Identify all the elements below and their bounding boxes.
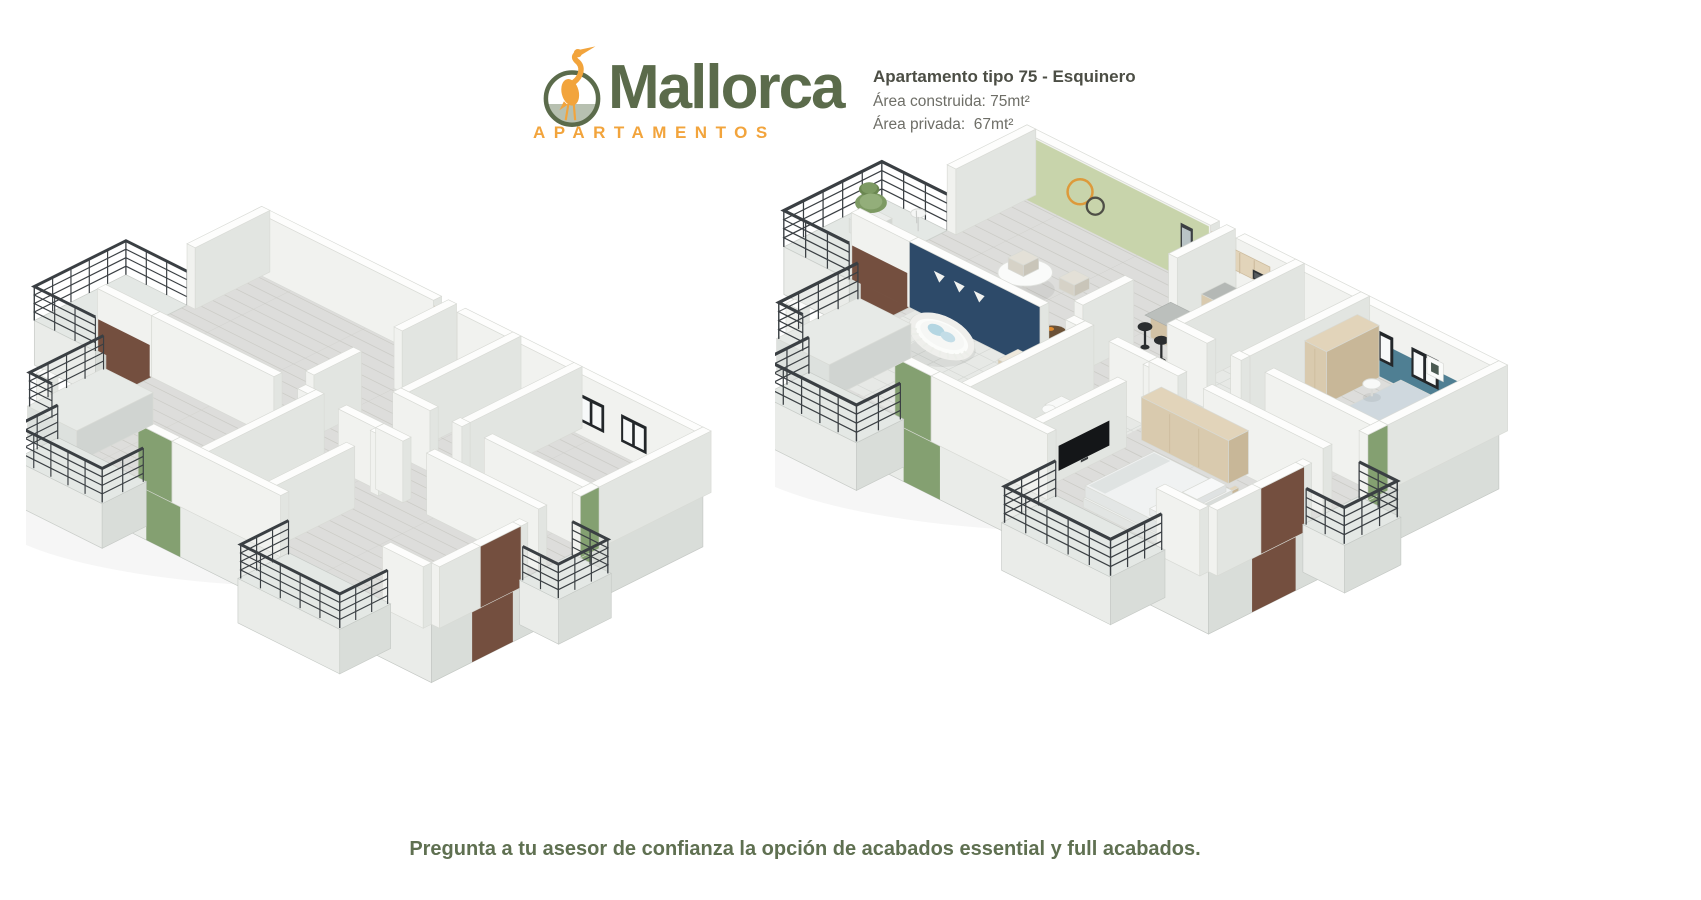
brand-tagline: APARTAMENTOS xyxy=(533,123,776,143)
unit-title: Apartamento tipo 75 - Esquinero xyxy=(873,68,1136,85)
floor-plan-unfurnished xyxy=(26,200,718,690)
footer-note: Pregunta a tu asesor de confianza la opc… xyxy=(0,838,1610,861)
brand-name: Mallorca xyxy=(608,57,844,119)
heron-in-circle-icon xyxy=(536,40,608,132)
floor-plan-furnished xyxy=(775,118,1515,642)
built-area: Área construida: 75mt² xyxy=(873,94,1136,110)
marketing-sheet: Mallorca APARTAMENTOS Apartamento tipo 7… xyxy=(0,0,1701,900)
